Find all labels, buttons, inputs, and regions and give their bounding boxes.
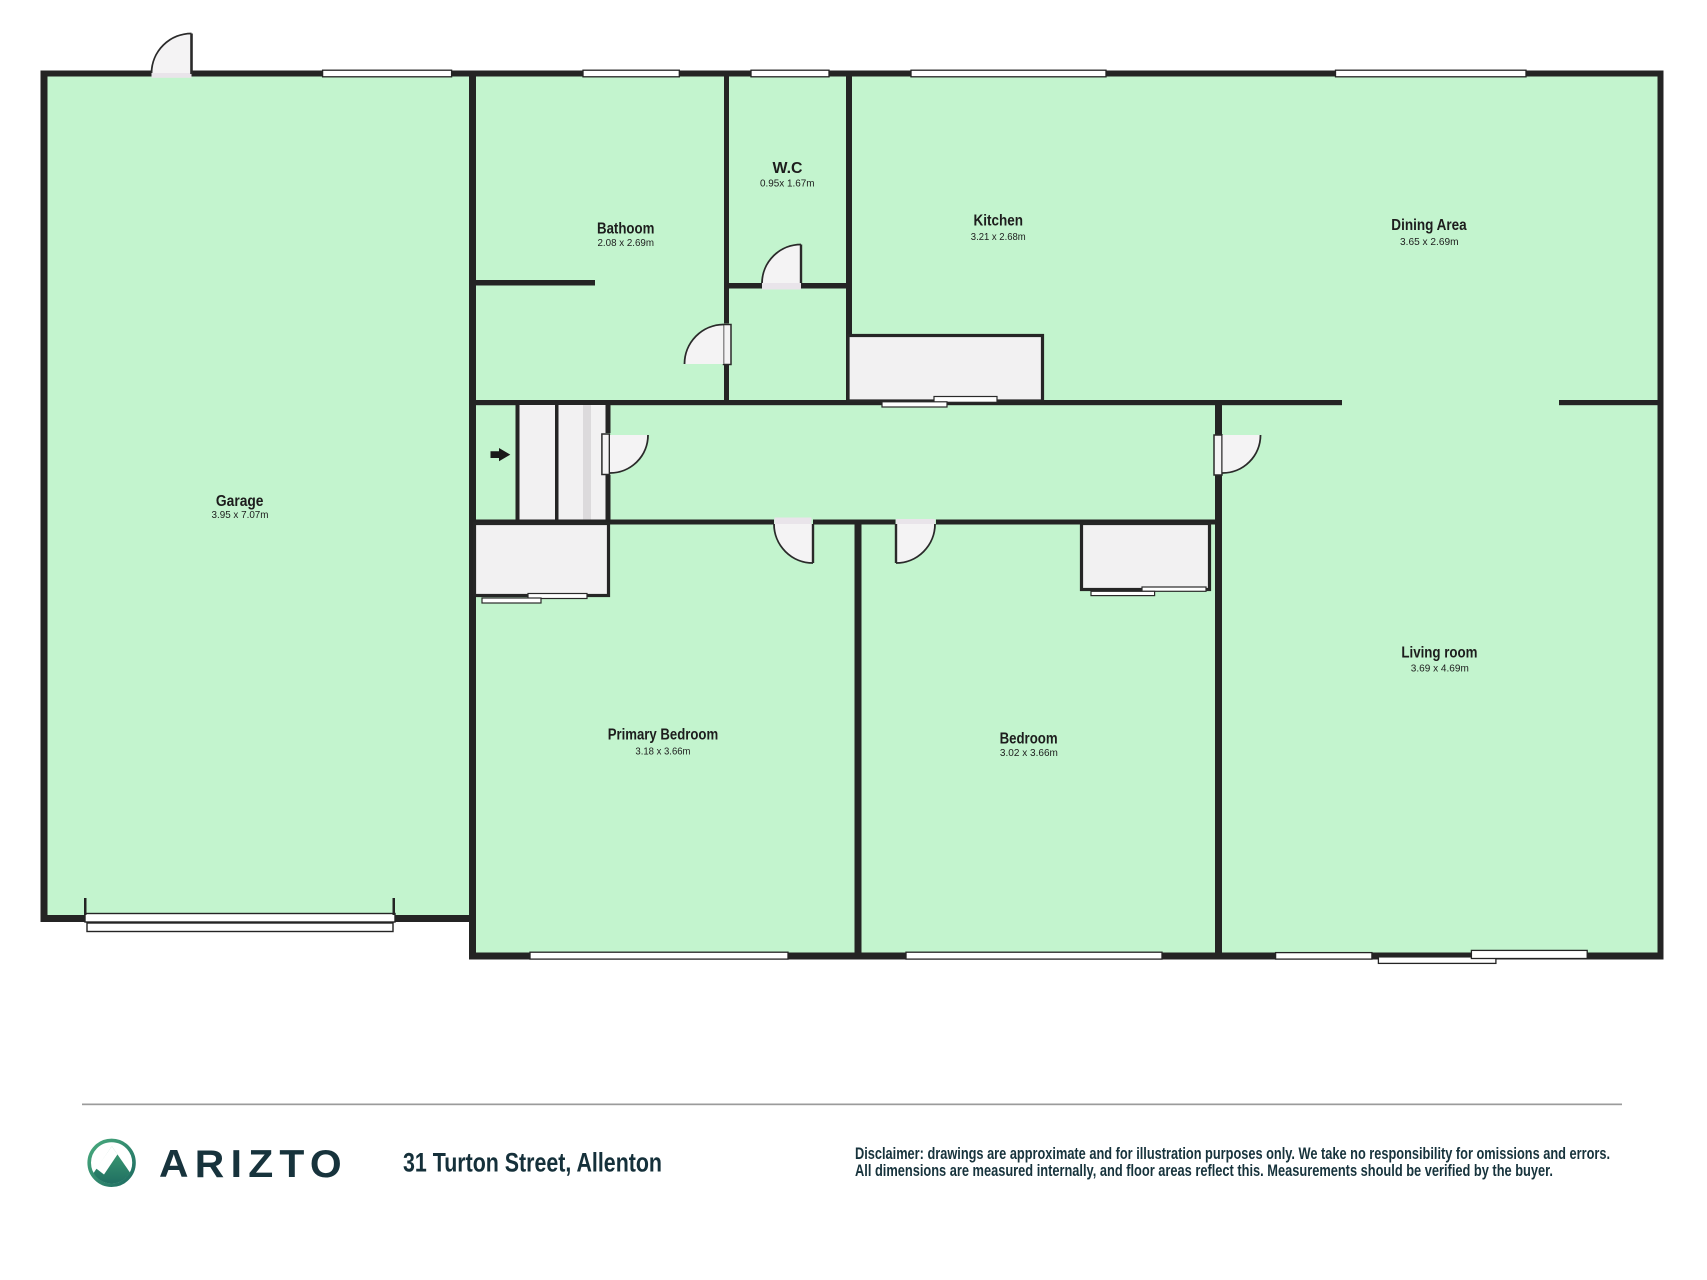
svg-text:3.69 x 4.69m: 3.69 x 4.69m	[1411, 664, 1469, 675]
svg-text:Dining Area: Dining Area	[1391, 217, 1467, 234]
svg-text:3.21 x 2.68m: 3.21 x 2.68m	[971, 232, 1026, 243]
svg-text:2.08 x 2.69m: 2.08 x 2.69m	[598, 238, 655, 249]
svg-text:Garage: Garage	[216, 493, 264, 510]
svg-text:All dimensions are measured in: All dimensions are measured internally, …	[855, 1161, 1553, 1180]
svg-text:3.65 x 2.69m: 3.65 x 2.69m	[1400, 237, 1459, 248]
svg-text:31 Turton Street, Allenton: 31 Turton Street, Allenton	[403, 1148, 662, 1178]
svg-text:ARIZTO: ARIZTO	[159, 1143, 348, 1186]
svg-text:3.18 x 3.66m: 3.18 x 3.66m	[635, 746, 690, 757]
svg-text:Primary Bedroom: Primary Bedroom	[608, 726, 719, 743]
svg-text:Disclaimer: drawings are appro: Disclaimer: drawings are approximate and…	[855, 1144, 1610, 1163]
svg-text:Living room: Living room	[1401, 644, 1477, 661]
svg-text:Bathoom: Bathoom	[597, 221, 654, 238]
svg-text:W.C: W.C	[773, 160, 803, 177]
svg-text:3.02 x 3.66m: 3.02 x 3.66m	[1000, 748, 1058, 759]
svg-text:3.95 x 7.07m: 3.95 x 7.07m	[212, 510, 269, 521]
svg-text:0.95x 1.67m: 0.95x 1.67m	[760, 179, 815, 190]
svg-text:Bedroom: Bedroom	[1000, 730, 1058, 747]
svg-text:Kitchen: Kitchen	[974, 213, 1024, 230]
